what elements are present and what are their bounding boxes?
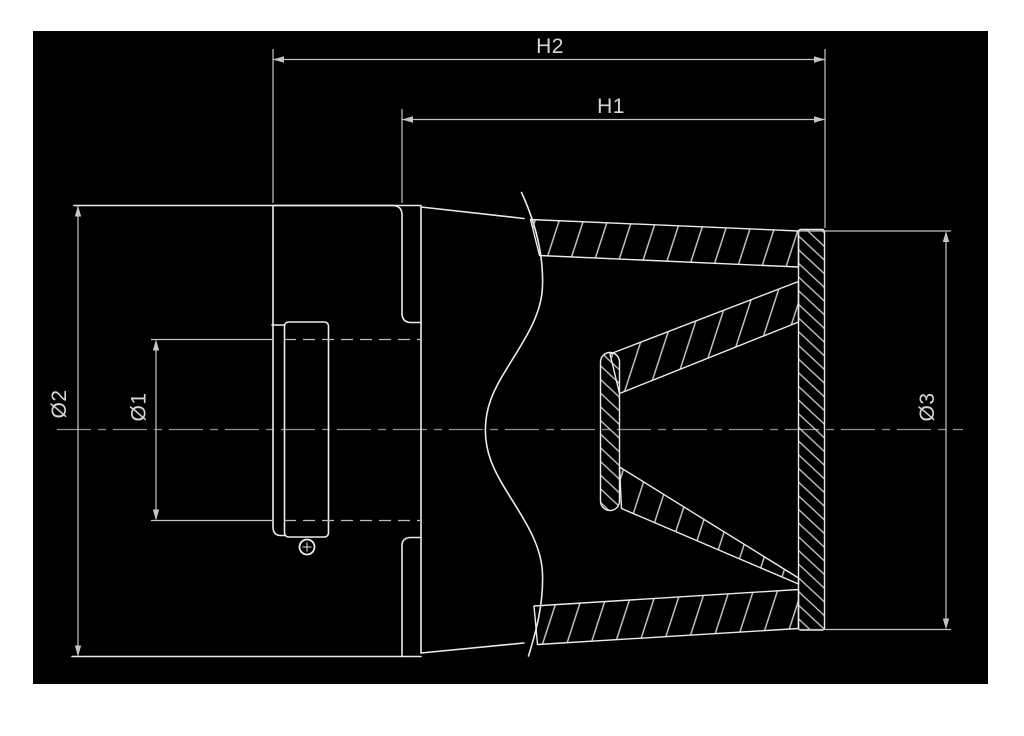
end-cap-section — [799, 230, 825, 631]
dim-label-dia2: Ø2 — [48, 389, 71, 418]
dim-label-h1: H1 — [597, 95, 625, 118]
drawing-page: H2 H1 Ø2 Ø1 Ø3 — [0, 0, 1024, 736]
technical-drawing-air-filter-section: H2 H1 Ø2 Ø1 Ø3 — [0, 0, 1024, 736]
dim-label-h2: H2 — [536, 35, 564, 58]
drawing-canvas — [33, 31, 988, 684]
dim-label-dia1: Ø1 — [128, 392, 151, 421]
dim-label-dia3: Ø3 — [916, 392, 939, 421]
